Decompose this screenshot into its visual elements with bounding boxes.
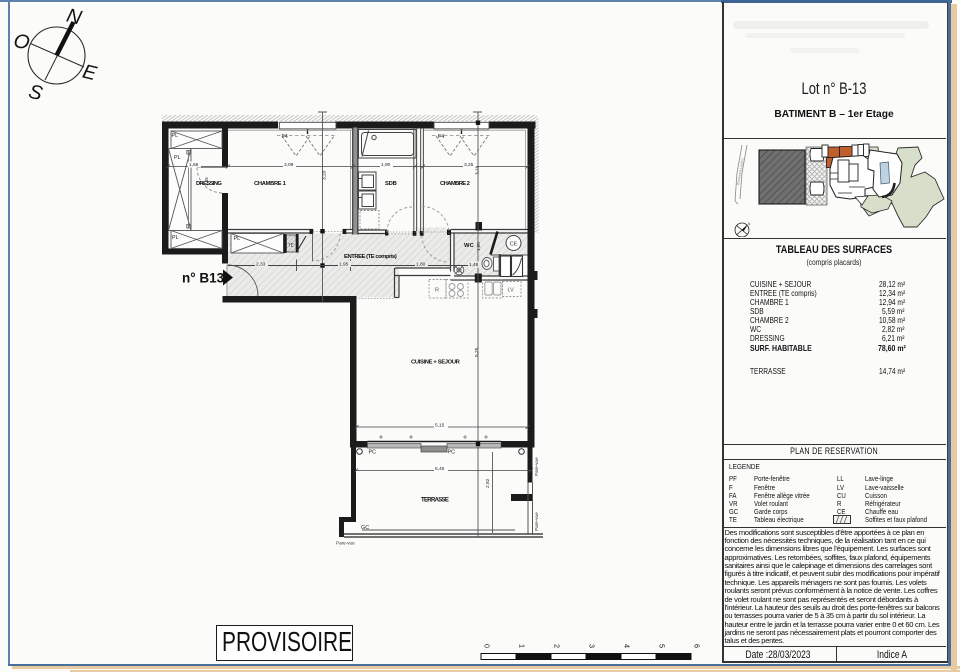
svg-text:0: 0 xyxy=(483,644,492,648)
svg-text:TE: TE xyxy=(288,243,294,248)
svg-text:1,95: 1,95 xyxy=(339,262,349,268)
svg-text:2: 2 xyxy=(553,644,562,648)
svg-text:3: 3 xyxy=(588,644,597,648)
svg-text:3,11: 3,11 xyxy=(475,166,481,175)
svg-text:PL: PL xyxy=(172,133,179,139)
svg-text:3,20: 3,20 xyxy=(322,170,328,180)
svg-text:2,33: 2,33 xyxy=(256,262,266,268)
svg-text:F4: F4 xyxy=(438,134,444,140)
svg-text:PL: PL xyxy=(234,236,241,242)
svg-text:1,66: 1,66 xyxy=(189,162,199,168)
svg-text:1,48: 1,48 xyxy=(469,262,479,268)
svg-text:DRESSING: DRESSING xyxy=(196,181,222,187)
svg-text:R: R xyxy=(435,288,439,294)
svg-text:ENTREE (TE compris): ENTREE (TE compris) xyxy=(344,254,397,260)
svg-text:LV: LV xyxy=(508,288,515,294)
svg-text:PL: PL xyxy=(174,155,181,161)
svg-text:n° B13: n° B13 xyxy=(182,271,225,286)
svg-text:5,45: 5,45 xyxy=(435,466,445,472)
svg-text:Pare-vue: Pare-vue xyxy=(336,541,355,546)
svg-text:1,60: 1,60 xyxy=(476,242,481,251)
svg-text:PL: PL xyxy=(172,235,179,241)
svg-text:N: N xyxy=(64,5,84,30)
svg-text:4: 4 xyxy=(623,644,632,648)
svg-text:CHAMBRE 1: CHAMBRE 1 xyxy=(254,181,287,187)
svg-text:2,92: 2,92 xyxy=(485,478,491,488)
svg-text:5,25: 5,25 xyxy=(474,347,480,357)
svg-text:GC: GC xyxy=(361,525,369,531)
svg-text:5: 5 xyxy=(658,644,667,648)
svg-text:TERRASSE: TERRASSE xyxy=(421,498,449,504)
svg-text:N: N xyxy=(748,222,751,226)
svg-text:1: 1 xyxy=(518,644,527,648)
svg-text:1,80: 1,80 xyxy=(416,262,426,268)
svg-text:CE: CE xyxy=(510,241,518,247)
svg-text:3,25: 3,25 xyxy=(464,162,474,168)
svg-text:WC: WC xyxy=(464,243,475,249)
svg-text:1,90: 1,90 xyxy=(381,162,391,168)
svg-text:PC: PC xyxy=(369,450,377,456)
svg-text:PC: PC xyxy=(448,450,456,456)
svg-text:Pare-vue: Pare-vue xyxy=(534,457,539,476)
svg-text:CUISINE + SEJOUR: CUISINE + SEJOUR xyxy=(411,360,461,366)
svg-text:3,09: 3,09 xyxy=(284,162,294,168)
svg-text:Pare-vue: Pare-vue xyxy=(534,512,539,531)
svg-text:SDB: SDB xyxy=(385,181,397,187)
svg-text:S: S xyxy=(26,81,45,106)
svg-text:5,15: 5,15 xyxy=(435,423,445,429)
svg-text:CHAMBRE 2: CHAMBRE 2 xyxy=(440,181,470,187)
svg-text:6: 6 xyxy=(693,644,702,648)
